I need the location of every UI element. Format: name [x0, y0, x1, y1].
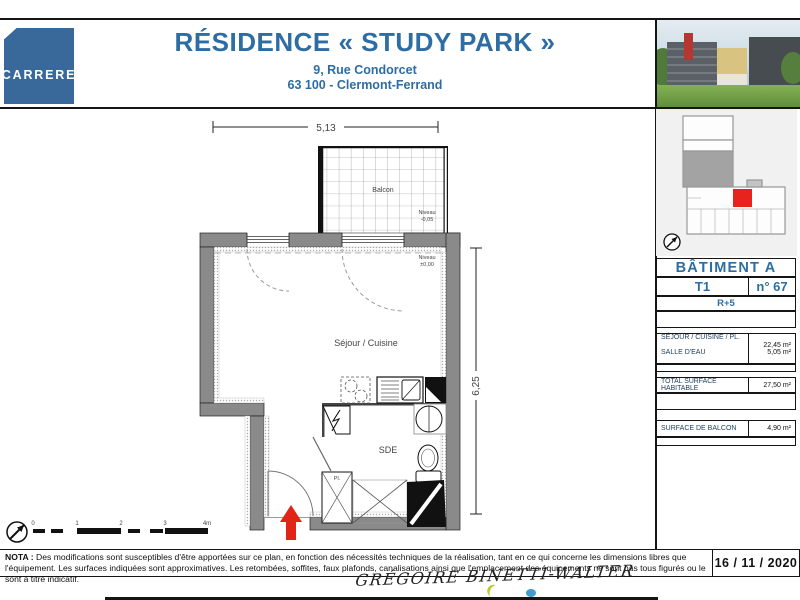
balcony-area-label: SURFACE DE BALCON — [657, 425, 748, 432]
date-box: 16 / 11 / 2020 — [712, 549, 800, 577]
empty-box-3 — [656, 393, 796, 410]
balcony: Balcon Niveau -0,05 — [318, 146, 448, 233]
area-value-bathroom: 5,05 m² — [749, 349, 795, 356]
unit-type: T1 — [657, 279, 748, 294]
window-1 — [247, 233, 289, 247]
site-compass-icon — [664, 234, 680, 250]
dimension-width: 5,13 — [213, 121, 438, 134]
interior-level-value: ±0,00 — [420, 262, 434, 268]
interior-level-label: Niveau — [418, 255, 435, 261]
closet: Pl. — [322, 472, 352, 523]
area-value-living: 22,45 m² — [749, 342, 795, 349]
living-room-label: Séjour / Cuisine — [334, 338, 398, 348]
site-highlighted-unit — [733, 189, 752, 207]
photo-grass — [657, 85, 800, 107]
total-box: TOTAL SURFACE HABITABLE 27,50 m² — [656, 377, 796, 393]
dimension-width-label: 5,13 — [316, 123, 336, 134]
header: RÉSIDENCE « STUDY PARK » 9, Rue Condorce… — [80, 28, 650, 93]
photo-tree-right — [781, 52, 800, 84]
floor-plan: 5,13 6,25 Balcon Niveau -0,05 — [0, 108, 655, 549]
unit-number: n° 67 — [748, 278, 795, 296]
dimension-height-label: 6,25 — [471, 376, 482, 396]
page-title: RÉSIDENCE « STUDY PARK » — [80, 28, 650, 56]
scale-tick-4: 4m — [203, 521, 211, 527]
address-line-2: 63 100 - Clermont-Ferrand — [80, 78, 650, 93]
total-value: 27,50 m² — [749, 382, 795, 389]
washbasin — [414, 404, 446, 434]
scale-tick-1: 1 — [75, 521, 79, 527]
balcony-label: Balcon — [372, 187, 394, 194]
balcony-level-label: Niveau — [418, 210, 435, 216]
building-title-box: BÂTIMENT A — [656, 258, 796, 277]
carrere-logo: CARRERE — [4, 28, 74, 104]
unit-box: T1 n° 67 — [656, 277, 796, 297]
balcony-area-box: SURFACE DE BALCON 4,90 m² — [656, 420, 796, 437]
sink — [377, 377, 423, 403]
signature-mark-blue — [526, 589, 536, 597]
balcony-level-value: -0,05 — [421, 217, 434, 223]
empty-box-2 — [656, 364, 796, 372]
hob — [341, 377, 370, 403]
toilet — [416, 445, 441, 482]
balcony-area-value: 4,90 m² — [749, 425, 795, 432]
scale-tick-2: 2 — [119, 521, 123, 527]
water-heater — [323, 406, 350, 434]
area-label-bathroom: SALLE D'EAU — [657, 349, 748, 364]
interior-annotations: Niveau ±0,00 Séjour / Cuisine — [215, 249, 443, 348]
scale-tick-3: 3 — [163, 521, 167, 527]
entrance-arrow — [280, 505, 302, 540]
logo-text: CARRERE — [2, 68, 76, 82]
empty-box-1 — [656, 311, 796, 329]
window-2 — [342, 233, 404, 247]
floor-box: R+5 — [656, 296, 796, 312]
areas-box: SÉJOUR / CUISINE / PL. SALLE D'EAU 22,45… — [656, 333, 796, 364]
entrance — [268, 471, 313, 540]
scale-bar: 0 1 2 3 4m — [31, 521, 211, 534]
area-label-living: SÉJOUR / CUISINE / PL. — [657, 334, 748, 349]
empty-box-4 — [656, 437, 796, 446]
building-title: BÂTIMENT A — [657, 260, 795, 276]
building-photo — [657, 20, 800, 107]
duct-shaft — [425, 377, 446, 403]
address-line-1: 9, Rue Condorcet — [80, 63, 650, 78]
photo-red-stripe — [684, 33, 693, 60]
site-plan — [656, 109, 797, 256]
dimension-height: 6,25 — [470, 248, 482, 514]
bathroom-door — [313, 437, 331, 471]
plan-sheet: CARRERE RÉSIDENCE « STUDY PARK » 9, Rue … — [0, 0, 800, 600]
closet-label: Pl. — [334, 476, 341, 482]
bathroom-label: SDE — [379, 445, 398, 455]
floor-level: R+5 — [657, 298, 795, 309]
plan-date: 16 / 11 / 2020 — [715, 556, 798, 570]
nota-label: NOTA : — [5, 552, 34, 562]
total-label: TOTAL SURFACE HABITABLE — [657, 378, 748, 392]
compass-icon — [7, 522, 27, 542]
scale-tick-0: 0 — [31, 521, 35, 527]
